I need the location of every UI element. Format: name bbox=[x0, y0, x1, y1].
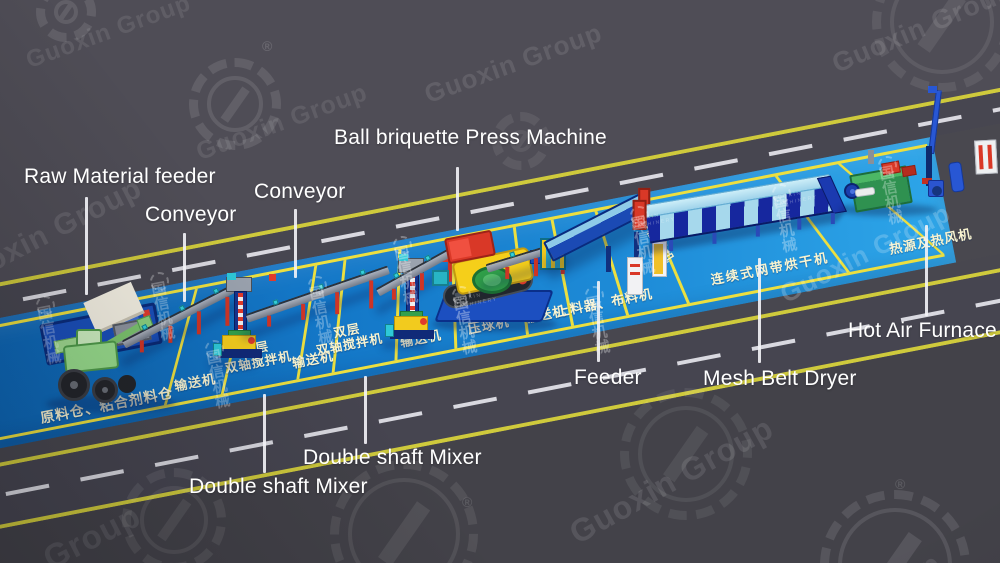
leader-line bbox=[758, 258, 761, 363]
leader-line bbox=[456, 167, 459, 231]
label-ball-press: Ball briquette Press Machine bbox=[334, 126, 607, 150]
leader-line bbox=[183, 233, 186, 302]
production-line-diagram: 原料仓、粘合剂料仓 输送机 双层 双轴搅拌机 输送机 双层 双轴搅拌机 输送机 … bbox=[0, 0, 1000, 563]
label-conveyor-2: Conveyor bbox=[254, 180, 345, 204]
leader-line bbox=[263, 394, 266, 473]
label-double-shaft-mixer-2: Double shaft Mixer bbox=[303, 446, 482, 470]
label-conveyor-1: Conveyor bbox=[145, 203, 236, 227]
label-double-shaft-mixer-1: Double shaft Mixer bbox=[189, 475, 368, 499]
label-raw-material-feeder: Raw Material feeder bbox=[24, 165, 216, 189]
label-feeder: Feeder bbox=[574, 366, 642, 390]
leader-line bbox=[597, 281, 600, 362]
label-mesh-belt-dryer: Mesh Belt Dryer bbox=[703, 367, 857, 391]
vignette-overlay bbox=[0, 0, 1000, 563]
leader-line bbox=[85, 197, 88, 295]
leader-line bbox=[364, 376, 367, 444]
label-hot-air-furnace: Hot Air Furnace bbox=[848, 319, 997, 343]
leader-line bbox=[294, 209, 297, 278]
leader-line bbox=[925, 225, 928, 316]
